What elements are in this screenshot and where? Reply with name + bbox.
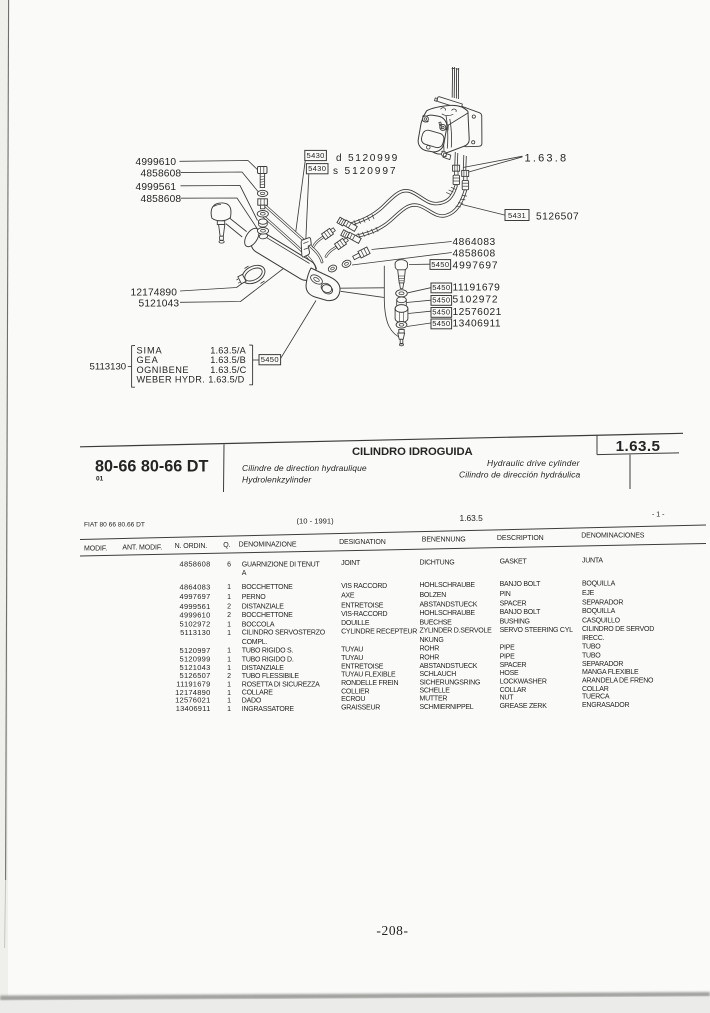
svg-text:PERNO: PERNO [242, 594, 266, 601]
svg-text:-208-: -208- [376, 923, 408, 938]
svg-text:BUSHING: BUSHING [500, 618, 530, 625]
svg-text:BOQUILLA: BOQUILLA [582, 608, 616, 615]
svg-text:1: 1 [227, 706, 231, 713]
svg-text:GRAISSEUR: GRAISSEUR [341, 705, 380, 712]
svg-text:5113130: 5113130 [90, 362, 127, 373]
svg-text:JUNTA: JUNTA [582, 558, 603, 565]
svg-text:JOINT: JOINT [341, 560, 361, 567]
svg-text:1.63.5/A: 1.63.5/A [210, 346, 246, 356]
svg-text:5120997: 5120997 [345, 166, 398, 177]
svg-text:13406911: 13406911 [176, 704, 211, 713]
svg-text:5430: 5430 [308, 164, 326, 173]
svg-text:1: 1 [227, 656, 231, 663]
svg-text:SEPARADOR: SEPARADOR [582, 600, 623, 607]
svg-text:AXE: AXE [341, 593, 355, 600]
svg-text:12174890: 12174890 [131, 287, 178, 298]
svg-text:ECROU: ECROU [341, 696, 365, 703]
svg-text:5113130: 5113130 [180, 628, 210, 637]
svg-text:GASKET: GASKET [500, 558, 528, 565]
svg-text:ENGRASADOR: ENGRASADOR [582, 702, 629, 709]
svg-text:2: 2 [227, 673, 231, 680]
svg-text:DESCRIPTION: DESCRIPTION [497, 535, 544, 542]
svg-text:12576021: 12576021 [453, 307, 502, 318]
svg-text:(10 - 1991): (10 - 1991) [297, 516, 335, 525]
svg-text:s: s [333, 166, 338, 177]
svg-text:1: 1 [227, 681, 231, 688]
svg-text:4999610: 4999610 [136, 157, 177, 168]
svg-text:DOUILLE: DOUILLE [341, 620, 370, 627]
svg-text:TUYAU: TUYAU [341, 655, 363, 662]
svg-text:PIPE: PIPE [500, 653, 516, 660]
svg-text:CASQUILLO: CASQUILLO [582, 618, 621, 625]
svg-text:4858608: 4858608 [453, 248, 496, 259]
svg-text:5430: 5430 [307, 151, 325, 160]
svg-text:4997697: 4997697 [453, 260, 499, 271]
svg-text:BOQUILLA: BOQUILLA [582, 580, 616, 587]
svg-text:SIMA: SIMA [137, 346, 163, 356]
svg-text:Cilindro de dirección hydráuli: Cilindro de dirección hydráulica [459, 470, 580, 480]
svg-text:VIS RACCORD: VIS RACCORD [341, 583, 387, 590]
svg-text:CYLINDRE RECEPTEUR: CYLINDRE RECEPTEUR [341, 629, 417, 636]
svg-text:COLLIER: COLLIER [341, 689, 369, 696]
svg-text:1.63.5: 1.63.5 [616, 438, 661, 455]
svg-text:1: 1 [227, 665, 231, 672]
svg-text:CILINDRO IDROGUIDA: CILINDRO IDROGUIDA [352, 446, 473, 458]
svg-text:1: 1 [227, 648, 231, 655]
svg-text:ROHR: ROHR [420, 646, 440, 653]
svg-text:PIN: PIN [500, 591, 511, 598]
svg-text:5431: 5431 [508, 211, 526, 220]
svg-text:DISTANZIALE: DISTANZIALE [242, 665, 284, 672]
svg-text:TUBO: TUBO [582, 644, 601, 651]
svg-text:ANT. MODIF.: ANT. MODIF. [122, 545, 162, 552]
svg-text:80-66 80-66 DT: 80-66 80-66 DT [95, 458, 208, 476]
svg-text:CILINDRO DE SERVOD: CILINDRO DE SERVOD [582, 626, 654, 633]
svg-text:1: 1 [227, 584, 231, 591]
svg-text:4999561: 4999561 [136, 182, 177, 193]
svg-text:4864083: 4864083 [180, 582, 211, 591]
svg-text:Q.: Q. [223, 542, 230, 549]
svg-text:ARANDELA DE FRENO: ARANDELA DE FRENO [582, 678, 654, 685]
svg-text:SEPARADOR: SEPARADOR [582, 661, 623, 668]
svg-text:5450: 5450 [432, 296, 450, 305]
svg-text:ROSETTA DI SICUREZZA: ROSETTA DI SICUREZZA [242, 681, 320, 688]
svg-text:4999610: 4999610 [180, 610, 211, 619]
svg-text:Hydrolenkzylinder: Hydrolenkzylinder [242, 475, 312, 485]
svg-text:MODIF.: MODIF. [84, 546, 107, 553]
svg-text:TUYAU FLEXIBLE: TUYAU FLEXIBLE [341, 672, 396, 679]
svg-text:TUBO RIGIDO D.: TUBO RIGIDO D. [242, 656, 294, 663]
svg-text:SCHELLE: SCHELLE [420, 688, 451, 695]
svg-text:5450: 5450 [432, 308, 450, 317]
svg-text:d: d [336, 153, 342, 164]
svg-text:HOSE: HOSE [500, 670, 519, 677]
svg-text:4858608: 4858608 [180, 560, 211, 569]
svg-text:1.63.8: 1.63.8 [525, 153, 569, 165]
svg-text:EJE: EJE [582, 590, 595, 597]
svg-text:SCHLAUCH: SCHLAUCH [420, 671, 457, 678]
svg-text:VIS-RACCORD: VIS-RACCORD [341, 611, 387, 618]
svg-text:COLLAR: COLLAR [500, 687, 527, 694]
svg-text:ENTRETOISE: ENTRETOISE [341, 664, 384, 671]
svg-text:RONDELLE FREIN: RONDELLE FREIN [341, 680, 398, 687]
svg-text:1: 1 [227, 621, 231, 628]
svg-text:1.63.5/B: 1.63.5/B [210, 355, 246, 365]
svg-text:4858608: 4858608 [141, 194, 182, 205]
svg-text:DESIGNATION: DESIGNATION [339, 539, 386, 546]
svg-text:2: 2 [227, 612, 231, 619]
svg-text:OGNIBENE: OGNIBENE [137, 365, 190, 375]
svg-text:DISTANZIALE: DISTANZIALE [242, 603, 284, 610]
svg-text:BOCCHETTONE: BOCCHETTONE [242, 584, 293, 591]
svg-text:GUARNIZIONE DI TENUT: GUARNIZIONE DI TENUT [242, 561, 321, 568]
svg-text:MUTTER: MUTTER [420, 695, 448, 702]
svg-text:BOCCHETTONE: BOCCHETTONE [242, 612, 293, 619]
svg-text:PIPE: PIPE [500, 645, 516, 652]
svg-text:HOHLSCHRAUBE: HOHLSCHRAUBE [420, 610, 476, 617]
svg-text:5450: 5450 [432, 319, 450, 328]
svg-text:HOHLSCHRAUBE: HOHLSCHRAUBE [420, 582, 476, 589]
svg-text:COLLAR: COLLAR [582, 686, 609, 693]
svg-text:ZYLINDER D.SERVOLE: ZYLINDER D.SERVOLE [420, 628, 493, 635]
svg-text:IRECC.: IRECC. [582, 635, 605, 642]
svg-text:Hydraulic drive cylinder: Hydraulic drive cylinder [487, 458, 581, 468]
svg-text:ABSTANDSTUECK: ABSTANDSTUECK [420, 663, 478, 670]
svg-text:1.63.5/D: 1.63.5/D [208, 375, 244, 385]
svg-text:BENENNUNG: BENENNUNG [422, 537, 466, 544]
svg-text:11191679: 11191679 [453, 283, 501, 294]
svg-text:Cilindre de direction hydrauli: Cilindre de direction hydraulique [242, 463, 367, 473]
svg-text:WEBER HYDR.: WEBER HYDR. [137, 375, 206, 385]
svg-text:1.63.5/C: 1.63.5/C [210, 365, 246, 375]
svg-text:DADO: DADO [242, 697, 262, 704]
svg-text:GEA: GEA [137, 355, 159, 365]
svg-text:4864083: 4864083 [453, 237, 496, 248]
svg-text:- 1 -: - 1 - [652, 512, 665, 519]
svg-text:6: 6 [227, 561, 231, 568]
svg-text:5120999: 5120999 [348, 153, 399, 164]
svg-text:NUT: NUT [500, 694, 515, 701]
svg-text:SERVO STEERING CYL: SERVO STEERING CYL [500, 627, 574, 634]
svg-text:ABSTANDSTUECK: ABSTANDSTUECK [420, 602, 478, 609]
svg-text:INGRASSATORE: INGRASSATORE [242, 706, 295, 713]
svg-text:01: 01 [96, 476, 104, 483]
svg-text:1.63.5: 1.63.5 [460, 513, 484, 523]
svg-text:COLLARE: COLLARE [242, 690, 274, 697]
svg-text:BOLZEN: BOLZEN [420, 592, 447, 599]
svg-text:NKUNG: NKUNG [420, 637, 444, 644]
svg-text:5102972: 5102972 [453, 295, 499, 306]
svg-text:FIAT 80 66 80.66 DT: FIAT 80 66 80.66 DT [84, 522, 145, 529]
svg-text:TUBO FLESSIBILE: TUBO FLESSIBILE [242, 673, 300, 680]
svg-text:TUBO: TUBO [582, 653, 601, 660]
svg-text:CILINDRO SERVOSTERZO: CILINDRO SERVOSTERZO [242, 630, 326, 637]
svg-text:SICHERUNGSRING: SICHERUNGSRING [420, 679, 481, 686]
svg-text:5126507: 5126507 [536, 212, 579, 223]
svg-text:5120997: 5120997 [180, 646, 211, 655]
svg-text:SCHMIERNIPPEL: SCHMIERNIPPEL [420, 704, 474, 711]
svg-text:DICHTUNG: DICHTUNG [420, 559, 455, 566]
svg-text:4858608: 4858608 [141, 168, 182, 179]
svg-text:DENOMINACIONES: DENOMINACIONES [581, 533, 645, 540]
svg-text:5121043: 5121043 [139, 299, 180, 310]
svg-text:1: 1 [227, 594, 231, 601]
svg-text:ROHR: ROHR [420, 654, 440, 661]
svg-text:SPACER: SPACER [500, 662, 527, 669]
svg-text:A: A [242, 570, 247, 577]
svg-text:MANGA FLEXIBLE: MANGA FLEXIBLE [582, 669, 639, 676]
svg-text:COMPL.: COMPL. [242, 639, 268, 646]
svg-text:BUECHSE: BUECHSE [420, 619, 453, 626]
svg-text:N. ORDIN.: N. ORDIN. [175, 543, 208, 550]
svg-text:5450: 5450 [261, 355, 279, 364]
svg-text:2: 2 [227, 604, 231, 611]
svg-text:BANJO BOLT: BANJO BOLT [500, 581, 542, 588]
svg-text:SPACER: SPACER [500, 601, 527, 608]
svg-text:1: 1 [227, 697, 231, 704]
svg-text:4997697: 4997697 [180, 592, 211, 601]
svg-text:5450: 5450 [431, 260, 449, 269]
svg-text:1: 1 [227, 690, 231, 697]
svg-text:LOCKWASHER: LOCKWASHER [500, 678, 547, 685]
svg-text:TUYAU: TUYAU [341, 646, 363, 653]
svg-text:TUERCA: TUERCA [582, 694, 610, 701]
svg-text:DENOMINAZIONE: DENOMINAZIONE [239, 541, 297, 548]
svg-text:5450: 5450 [432, 283, 450, 292]
svg-text:GREASE ZERK: GREASE ZERK [500, 703, 548, 710]
svg-text:1: 1 [227, 630, 231, 637]
svg-text:BANJO BOLT: BANJO BOLT [500, 609, 542, 616]
svg-text:BOCCOLA: BOCCOLA [242, 621, 275, 628]
svg-text:TUBO RIGIDO S.: TUBO RIGIDO S. [242, 647, 294, 654]
svg-text:13406911: 13406911 [453, 319, 502, 330]
svg-text:ENTRETOISE: ENTRETOISE [341, 602, 384, 609]
